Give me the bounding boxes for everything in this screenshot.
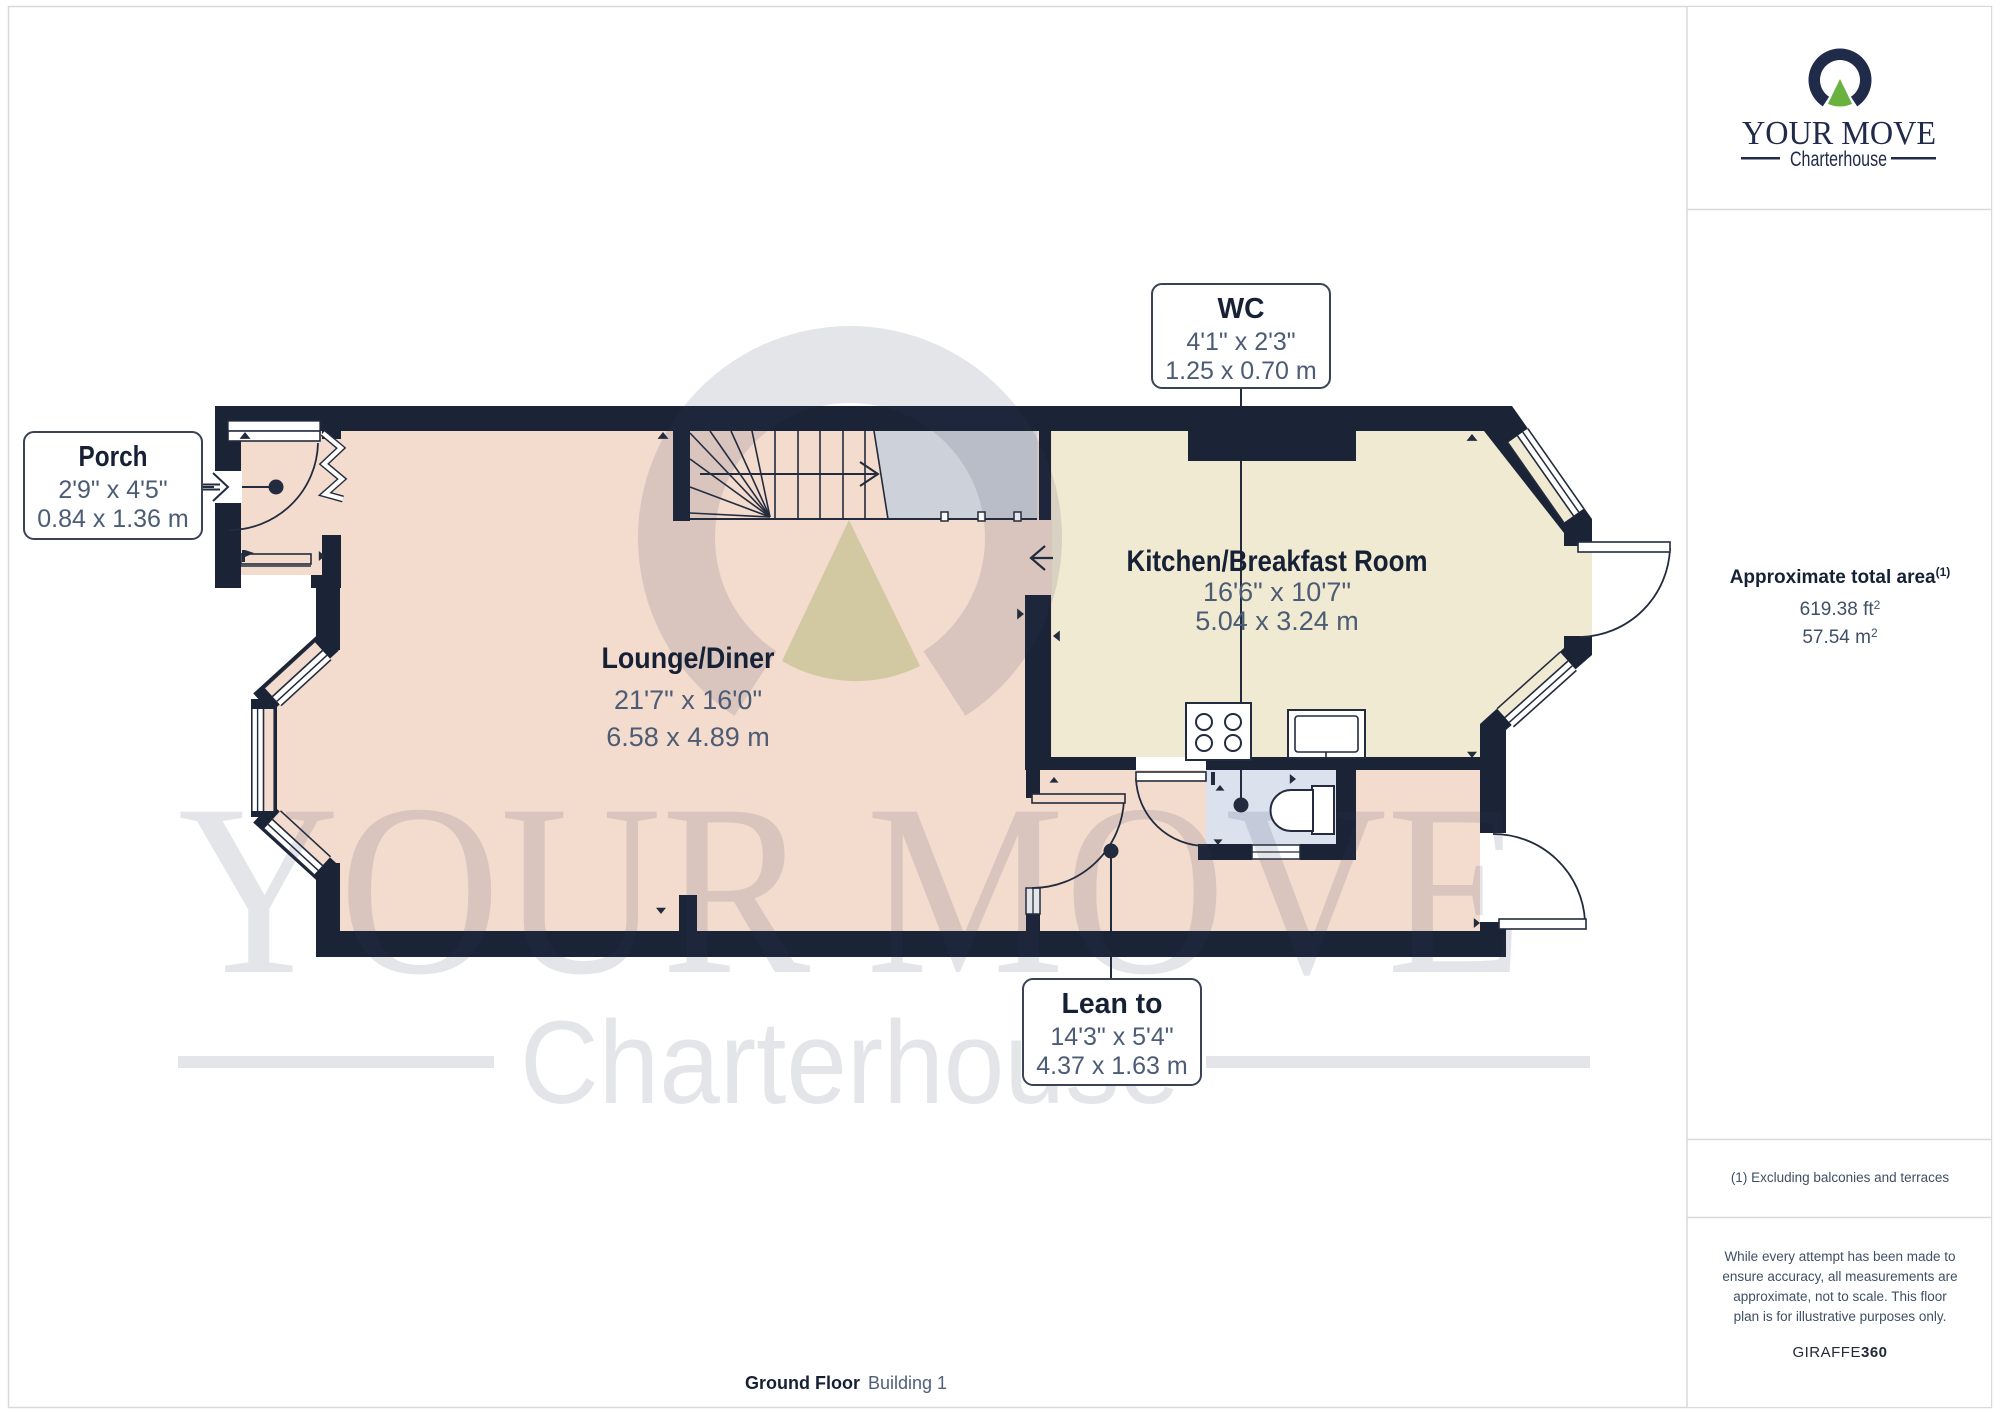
svg-text:1.25 x 0.70 m: 1.25 x 0.70 m: [1165, 357, 1316, 385]
svg-text:4'1" x 2'3": 4'1" x 2'3": [1186, 328, 1295, 356]
svg-text:Kitchen/Breakfast Room: Kitchen/Breakfast Room: [1127, 545, 1428, 578]
svg-text:YOUR MOVE: YOUR MOVE: [1742, 115, 1936, 152]
svg-text:Lean to: Lean to: [1062, 988, 1163, 1020]
svg-text:0.84 x 1.36 m: 0.84 x 1.36 m: [37, 505, 188, 533]
svg-text:619.38 ft2: 619.38 ft2: [1800, 598, 1881, 620]
svg-text:WC: WC: [1218, 293, 1265, 325]
svg-text:approximate, not to scale. Thi: approximate, not to scale. This floor: [1733, 1289, 1947, 1304]
svg-text:21'7" x 16'0": 21'7" x 16'0": [614, 685, 762, 715]
svg-text:plan is for illustrative purpo: plan is for illustrative purposes only.: [1734, 1309, 1947, 1324]
svg-text:57.54 m2: 57.54 m2: [1802, 626, 1878, 648]
svg-text:2'9" x 4'5": 2'9" x 4'5": [58, 476, 167, 504]
svg-text:14'3" x 5'4": 14'3" x 5'4": [1050, 1023, 1173, 1051]
svg-text:(1) Excluding balconies and te: (1) Excluding balconies and terraces: [1731, 1170, 1950, 1185]
svg-text:Ground FloorBuilding 1: Ground FloorBuilding 1: [745, 1373, 947, 1393]
svg-text:Charterhouse: Charterhouse: [1790, 148, 1887, 171]
svg-text:6.58 x 4.89 m: 6.58 x 4.89 m: [606, 722, 770, 752]
svg-text:GIRAFFE360: GIRAFFE360: [1792, 1344, 1887, 1361]
svg-text:16'6" x 10'7": 16'6" x 10'7": [1203, 577, 1351, 607]
svg-text:Porch: Porch: [79, 441, 148, 473]
svg-text:5.04 x 3.24 m: 5.04 x 3.24 m: [1195, 606, 1359, 636]
svg-text:ensure accuracy, all measureme: ensure accuracy, all measurements are: [1722, 1269, 1957, 1284]
svg-text:Lounge/Diner: Lounge/Diner: [602, 642, 775, 675]
svg-text:While every attempt has been m: While every attempt has been made to: [1724, 1249, 1955, 1264]
svg-text:Approximate total area(1): Approximate total area(1): [1730, 565, 1951, 588]
svg-text:4.37 x 1.63 m: 4.37 x 1.63 m: [1036, 1052, 1187, 1080]
